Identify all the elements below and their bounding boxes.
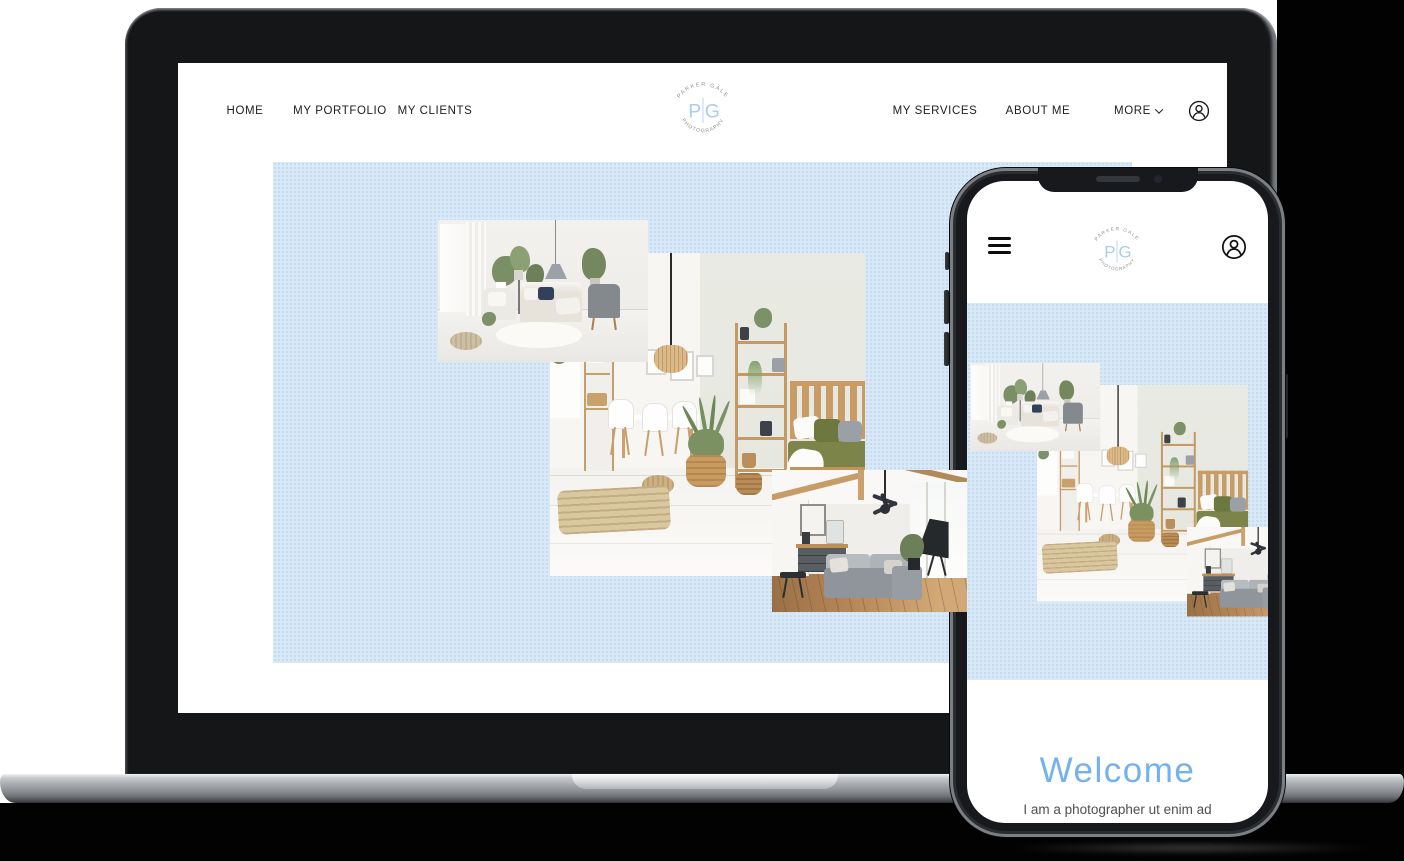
phone-notch bbox=[1038, 168, 1198, 192]
brand-logo[interactable]: PARKER GALE PHOTOGRAPHY P G bbox=[666, 74, 740, 153]
brand-logo-mobile[interactable]: PARKER GALE PHOTOGRAPHY P G bbox=[1085, 220, 1149, 289]
phone-volume-up-button bbox=[944, 290, 949, 324]
welcome-heading: Welcome bbox=[967, 751, 1268, 791]
brand-logo-badge: PARKER GALE PHOTOGRAPHY P G bbox=[1085, 220, 1149, 284]
hero-photo-bright-living-room bbox=[970, 363, 1100, 451]
logo-monogram-p: P bbox=[1104, 243, 1115, 262]
responsive-mockup-scene: HOME MY PORTFOLIO MY CLIENTS PARKER GALE… bbox=[0, 0, 1404, 861]
logo-arc-top-text: PARKER GALE bbox=[676, 82, 729, 100]
phone-volume-down-button bbox=[944, 332, 949, 366]
account-icon[interactable] bbox=[1188, 100, 1210, 127]
phone-mockup: PARKER GALE PHOTOGRAPHY P G bbox=[950, 168, 1285, 837]
phone-camera bbox=[1154, 175, 1162, 183]
nav-item-my-clients[interactable]: MY CLIENTS bbox=[398, 105, 473, 117]
nav-item-home[interactable]: HOME bbox=[227, 105, 264, 117]
nav-item-more[interactable]: MORE bbox=[1114, 105, 1162, 117]
logo-monogram-g: G bbox=[705, 100, 720, 122]
nav-item-about-me[interactable]: ABOUT ME bbox=[1006, 105, 1071, 117]
intro-text: I am a photographer ut enim ad bbox=[967, 802, 1268, 817]
logo-monogram-p: P bbox=[688, 100, 701, 122]
phone-browser-viewport: PARKER GALE PHOTOGRAPHY P G bbox=[967, 181, 1268, 823]
desktop-site-header: HOME MY PORTFOLIO MY CLIENTS PARKER GALE… bbox=[178, 63, 1227, 162]
laptop-base-notch bbox=[572, 774, 838, 789]
phone-speaker bbox=[1096, 176, 1140, 182]
hero-photo-loft-living-room bbox=[772, 470, 967, 612]
hamburger-menu-icon[interactable] bbox=[988, 237, 1011, 258]
phone-mute-button bbox=[945, 252, 949, 270]
chevron-down-icon bbox=[1155, 105, 1163, 113]
hero-photo-bright-living-room bbox=[438, 220, 648, 362]
svg-text:PARKER GALE: PARKER GALE bbox=[1094, 226, 1141, 242]
more-label: MORE bbox=[1114, 105, 1151, 117]
background-panel-right bbox=[1277, 0, 1404, 861]
phone-shadow bbox=[1000, 842, 1380, 854]
nav-item-my-services[interactable]: MY SERVICES bbox=[893, 105, 978, 117]
logo-arc-top-text: PARKER GALE bbox=[1094, 226, 1141, 242]
account-icon[interactable] bbox=[1221, 234, 1247, 265]
hero-photo-loft-living-room bbox=[1187, 527, 1268, 616]
nav-item-my-portfolio[interactable]: MY PORTFOLIO bbox=[293, 105, 387, 117]
mobile-hero-section bbox=[967, 303, 1268, 680]
svg-text:PARKER GALE: PARKER GALE bbox=[676, 82, 729, 100]
logo-monogram-g: G bbox=[1118, 243, 1131, 262]
brand-logo-badge: PARKER GALE PHOTOGRAPHY P G bbox=[666, 74, 740, 148]
